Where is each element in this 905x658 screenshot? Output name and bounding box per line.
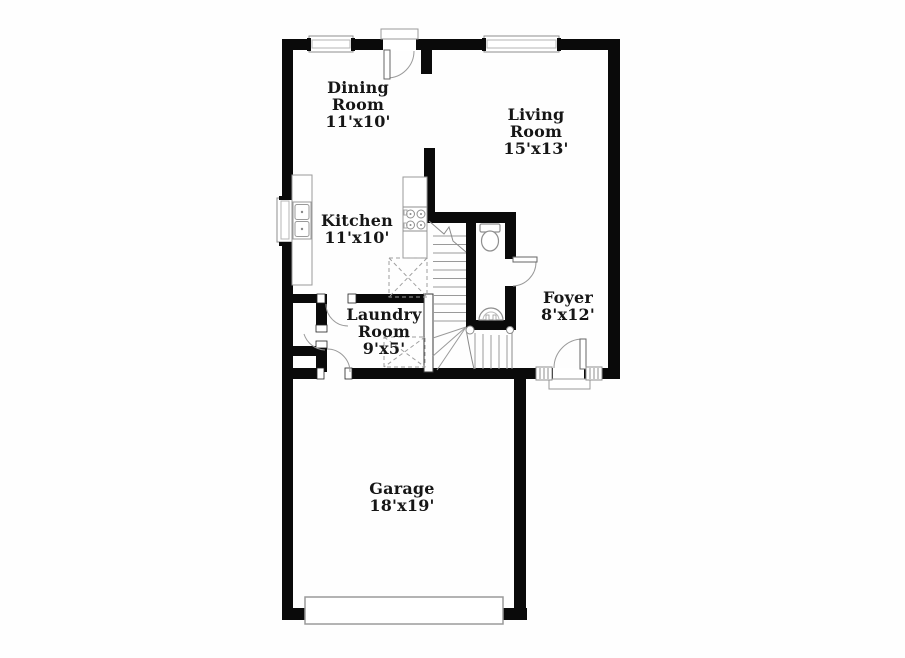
stair-treads [433, 236, 466, 321]
room-name: Kitchen [309, 212, 405, 229]
room-size: 15'x13' [488, 140, 584, 157]
window-dining [307, 36, 355, 52]
door-threshold [381, 29, 418, 39]
room-size: 8'x12' [520, 306, 616, 323]
room-label-kitchen: Kitchen 11'x10' [309, 212, 405, 246]
room-size: 18'x19' [354, 497, 450, 514]
room-label-foyer: Foyer 8'x12' [520, 289, 616, 323]
room-label-garage: Garage 18'x19' [354, 480, 450, 514]
sidelite-right [586, 367, 602, 380]
room-label-living: Living Room 15'x13' [488, 106, 584, 157]
room-name: Laundry Room [336, 306, 432, 340]
door-leaf [384, 50, 390, 79]
room-name: Foyer [520, 289, 616, 306]
room-size: 9'x5' [336, 340, 432, 357]
door-threshold [549, 379, 590, 389]
room-label-dining: Dining Room 11'x10' [310, 79, 406, 130]
room-name: Living Room [488, 106, 584, 140]
toilet [480, 224, 500, 251]
door-swing-arc [513, 262, 536, 286]
room-size: 11'x10' [309, 229, 405, 246]
room-name: Dining Room [310, 79, 406, 113]
pedestal-sink [479, 308, 503, 320]
door-swing-arc [387, 51, 414, 78]
refrigerator-space [389, 258, 427, 297]
powder-door [513, 257, 537, 286]
room-size: 11'x10' [310, 113, 406, 130]
room-name: Garage [354, 480, 450, 497]
window-kitchen [277, 196, 293, 246]
front-door [536, 339, 602, 389]
garage-door [305, 597, 503, 624]
door-swing-arc [554, 339, 583, 368]
door-leaf [580, 339, 586, 369]
newel-post [466, 326, 474, 334]
floor-plan: Dining Room 11'x10' Living Room 15'x13' … [0, 0, 905, 658]
stair-rail-curve [466, 329, 474, 369]
newel-post [507, 327, 514, 334]
room-label-laundry: Laundry Room 9'x5' [336, 306, 432, 357]
sidelite-left [536, 367, 552, 380]
door-leaf [513, 257, 537, 262]
window-living [482, 36, 561, 52]
back-door [381, 29, 418, 79]
floor-plan-drawing [0, 0, 905, 658]
